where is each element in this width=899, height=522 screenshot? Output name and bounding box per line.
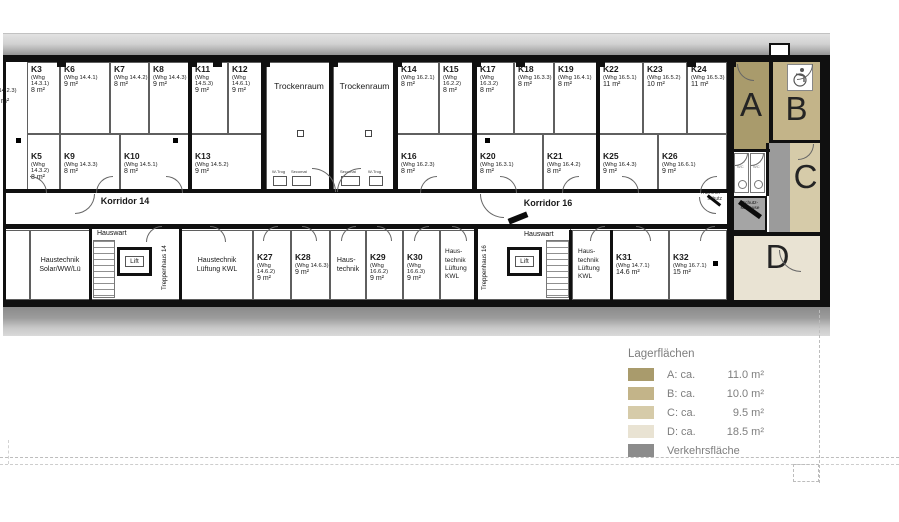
wall — [188, 62, 192, 189]
room-id: K29 — [370, 253, 386, 263]
section-dash-vertical — [819, 310, 820, 483]
legend-value: 18.5 m² — [716, 426, 764, 438]
section-dash-line-2 — [0, 464, 899, 465]
legend-item-b: B: ca. 10.0 m² — [628, 384, 764, 403]
toilet-icon-2 — [754, 180, 763, 189]
room-area: 9 m² — [153, 81, 167, 89]
wall — [730, 149, 770, 152]
section-dash-rect — [793, 464, 819, 482]
wall — [769, 140, 822, 143]
room-k24: K24(Whg 16.5.3)11 m² — [687, 62, 727, 134]
room-area: 9 m² — [603, 168, 617, 176]
room-id: K9 — [64, 152, 75, 162]
wall-pillar — [687, 62, 696, 67]
wall — [766, 143, 769, 196]
room-id: K14 — [401, 65, 417, 75]
room-area: 8 m² — [401, 168, 415, 176]
room-whg: (Whg 14.6.2) — [257, 263, 290, 276]
room-k7: K7(Whg 14.4.2)8 m² — [110, 62, 149, 134]
room-area: 8 m² — [31, 87, 45, 95]
room-whg: (Whg 16.3.2) — [480, 75, 513, 88]
ceiling-marker — [365, 130, 372, 137]
wall-pillar — [329, 62, 338, 67]
treppenhaus-16-label: Treppenhaus 16 — [481, 238, 493, 298]
w-trog-fixture — [369, 176, 383, 186]
lift-16-label: Lift — [515, 256, 534, 267]
wall — [3, 300, 830, 307]
room-id: K32 — [673, 253, 689, 263]
w-trog-label: W-Trog — [272, 170, 285, 174]
room-partial-bottom-left — [3, 230, 30, 300]
storage-area-b-label: B — [771, 92, 822, 125]
wall — [820, 55, 830, 307]
wall — [3, 55, 6, 305]
lift-14-label: Lift — [125, 256, 144, 267]
wall-pillar — [393, 62, 402, 67]
wall — [610, 230, 613, 300]
exterior-band-bottom — [3, 307, 830, 336]
room-area: 9 m² — [662, 168, 676, 176]
room-id: K8 — [153, 65, 164, 75]
room-whg: (Whg 14.3.1) — [31, 75, 59, 88]
room-id: K5 — [31, 152, 42, 162]
secomat-label: Secomat — [291, 170, 307, 174]
room-id: K12 — [232, 65, 248, 75]
room-area: 11 m² — [603, 81, 620, 89]
room-haustechnik-solar: Haustechnik Solar/WW/Lü — [30, 230, 90, 300]
room-id: K23 — [647, 65, 663, 75]
corridor-16-label: Korridor 16 — [511, 198, 585, 208]
room-id: K22 — [603, 65, 619, 75]
legend-swatch-verkehrsflaeche — [628, 444, 654, 457]
room-k19: K19(Whg 16.4.1)8 m² — [554, 62, 597, 134]
room-k13: K13(Whg 14.5.2)9 m² — [191, 134, 263, 193]
room-area: 14.6 m² — [616, 269, 640, 277]
toilet-icon-1 — [738, 180, 747, 189]
room-id: K25 — [603, 152, 619, 162]
hauswart-14-label: Hauswart — [97, 230, 127, 238]
legend-label: A: ca. — [667, 369, 716, 381]
legend-item-c: C: ca. 9.5 m² — [628, 403, 764, 422]
room-id: K15 — [443, 65, 459, 75]
room-area: 8 m² — [443, 87, 457, 95]
room-whg: (Whg 14.3.2) — [31, 162, 59, 175]
legend-value: 11.0 m² — [716, 369, 764, 381]
storage-area-d-label: D — [733, 240, 822, 273]
room-k11: K11(Whg 14.5.3)9 m² — [191, 62, 228, 134]
wall — [89, 224, 92, 300]
legend-value: 9.5 m² — [716, 407, 764, 419]
room-id: K21 — [547, 152, 563, 162]
room-area: 8 m² — [64, 168, 78, 176]
room-area: 9 m² — [257, 275, 271, 283]
room-area: 8 m² — [401, 81, 415, 89]
room-id: K19 — [558, 65, 574, 75]
legend-swatch-b — [628, 387, 654, 400]
legend-swatch-c — [628, 406, 654, 419]
stairs-16 — [546, 240, 569, 298]
room-k18: K18(Whg 16.3.3)8 m² — [514, 62, 554, 134]
room-area: 8 m² — [480, 168, 494, 176]
section-marker — [485, 138, 490, 143]
legend-swatch-d — [628, 425, 654, 438]
w-trog-fixture — [273, 176, 287, 186]
wall-pillar — [727, 62, 736, 67]
legend-swatch-a — [628, 368, 654, 381]
room-area: 8 m² — [114, 81, 128, 89]
room-area: 8 m² — [558, 81, 572, 89]
section-marker — [713, 261, 718, 266]
room-k17: K17(Whg 16.3.2)8 m² — [476, 62, 514, 134]
room-id: K30 — [407, 253, 423, 263]
section-marker — [173, 138, 178, 143]
wall — [261, 62, 266, 189]
room-id: K13 — [195, 152, 211, 162]
wall — [472, 62, 477, 189]
room-k22: K22(Whg 16.5.1)11 m² — [599, 62, 643, 134]
room-id: K16 — [401, 152, 417, 162]
wall-pillar — [57, 62, 66, 67]
room-area: 15 m² — [673, 269, 691, 277]
room-area: 8 m² — [124, 168, 138, 176]
room-whg: (Whg 14.5.3) — [195, 75, 227, 88]
hauswart-16-label: Hauswart — [524, 231, 554, 239]
wall — [3, 55, 830, 62]
legend-label: D: ca. — [667, 426, 716, 438]
room-k15: K15(Whg 16.2.2)8 m² — [439, 62, 474, 134]
room-whg: (Whg 16.2.2) — [443, 75, 473, 88]
wall — [3, 224, 730, 229]
storage-area-c-label: C — [789, 160, 822, 193]
storage-area-a-label: A — [733, 88, 769, 121]
wall-pillar — [213, 62, 222, 67]
room-area: 9 m² — [295, 269, 309, 277]
wall — [393, 62, 398, 189]
room-id: K20 — [480, 152, 496, 162]
section-marker — [16, 138, 21, 143]
room-id: K17 — [480, 65, 496, 75]
wall — [329, 62, 333, 189]
room-id: K10 — [124, 152, 140, 162]
section-dash-line-1 — [0, 457, 899, 458]
legend-value: 10.0 m² — [716, 388, 764, 400]
room-area: 9 m² — [195, 168, 209, 176]
lift-16: Lift — [507, 247, 542, 276]
room-id: K7 — [114, 65, 125, 75]
wall — [179, 224, 182, 300]
secomat-fixture — [292, 176, 311, 186]
room-area: 8 m² — [480, 87, 494, 95]
wall — [727, 55, 734, 307]
room-whg: (Whg 16.6.3) — [407, 263, 439, 276]
legend-label: B: ca. — [667, 388, 716, 400]
wall — [596, 62, 600, 189]
room-area: 9 m² — [232, 87, 246, 95]
treppenhaus-14-label: Treppenhaus 14 — [161, 238, 173, 298]
wall-pillar — [516, 62, 525, 67]
room-id: K27 — [257, 253, 273, 263]
wall — [769, 62, 773, 142]
room-whg: (Whg 16.6.2) — [370, 263, 402, 276]
wc-label-2: WC — [753, 165, 760, 169]
corridor-14-label: Korridor 14 — [88, 196, 162, 206]
stairs-14 — [93, 240, 115, 298]
room-k23: K23(Whg 16.5.2)10 m² — [643, 62, 687, 134]
room-k6: K6(Whg 14.4.1)9 m² — [60, 62, 110, 134]
section-dash-left — [8, 440, 9, 464]
wall-pillar — [261, 62, 270, 67]
wall-pillar — [472, 62, 481, 67]
door-arc — [480, 194, 504, 218]
room-area: 8 m² — [547, 168, 561, 176]
lift-14: Lift — [117, 247, 152, 276]
basement-floorplan: Korridor 14 Korridor 16 (Whg 14.2.3) m² … — [0, 0, 899, 522]
legend: Lagerflächen A: ca. 11.0 m² B: ca. 10.0 … — [628, 348, 764, 460]
room-k12: K12(Whg 14.6.1)9 m² — [228, 62, 263, 134]
wc-label-1: WC — [737, 165, 744, 169]
room-area: 9 m² — [407, 275, 421, 283]
room-id: K11 — [195, 65, 210, 75]
legend-label: C: ca. — [667, 407, 716, 419]
verkehrsflaeche-strip — [769, 143, 790, 235]
room-id: K31 — [616, 253, 632, 263]
room-id: K28 — [295, 253, 311, 263]
room-id: K3 — [31, 65, 42, 75]
wall — [769, 232, 822, 235]
protection-bar — [508, 211, 529, 224]
room-k32: K32(Whg 16.7.1)15 m² — [669, 230, 727, 300]
room-k14: K14(Whg 16.2.1)8 m² — [397, 62, 439, 134]
room-k8: K8(Whg 14.4.3)9 m² — [149, 62, 191, 134]
legend-item-d: D: ca. 18.5 m² — [628, 422, 764, 441]
room-id: K26 — [662, 152, 678, 162]
room-area: 9 m² — [195, 87, 209, 95]
room-area: 8 m² — [518, 81, 532, 89]
wall-pillar — [188, 62, 197, 67]
room-area: 9 m² — [64, 81, 78, 89]
ceiling-marker — [297, 130, 304, 137]
door-arc — [75, 194, 95, 214]
trockenraum-label: Trockenraum — [340, 81, 390, 92]
room-k3: K3(Whg 14.3.1)8 m² — [27, 62, 60, 134]
legend-label: Verkehrsfläche — [667, 445, 740, 457]
legend-item-a: A: ca. 11.0 m² — [628, 365, 764, 384]
wall — [569, 230, 572, 300]
wall-pillar — [596, 62, 605, 67]
legend-title: Lagerflächen — [628, 348, 764, 360]
room-whg: (Whg 14.6.1) — [232, 75, 262, 88]
w-trog-label: W-Trog — [368, 170, 381, 174]
exterior-band-top — [3, 33, 830, 56]
room-area: 11 m² — [691, 81, 708, 89]
room-area: 9 m² — [370, 275, 384, 283]
room-area: 10 m² — [647, 81, 665, 89]
wall — [474, 224, 478, 300]
trockenraum-label: Trockenraum — [274, 81, 324, 92]
